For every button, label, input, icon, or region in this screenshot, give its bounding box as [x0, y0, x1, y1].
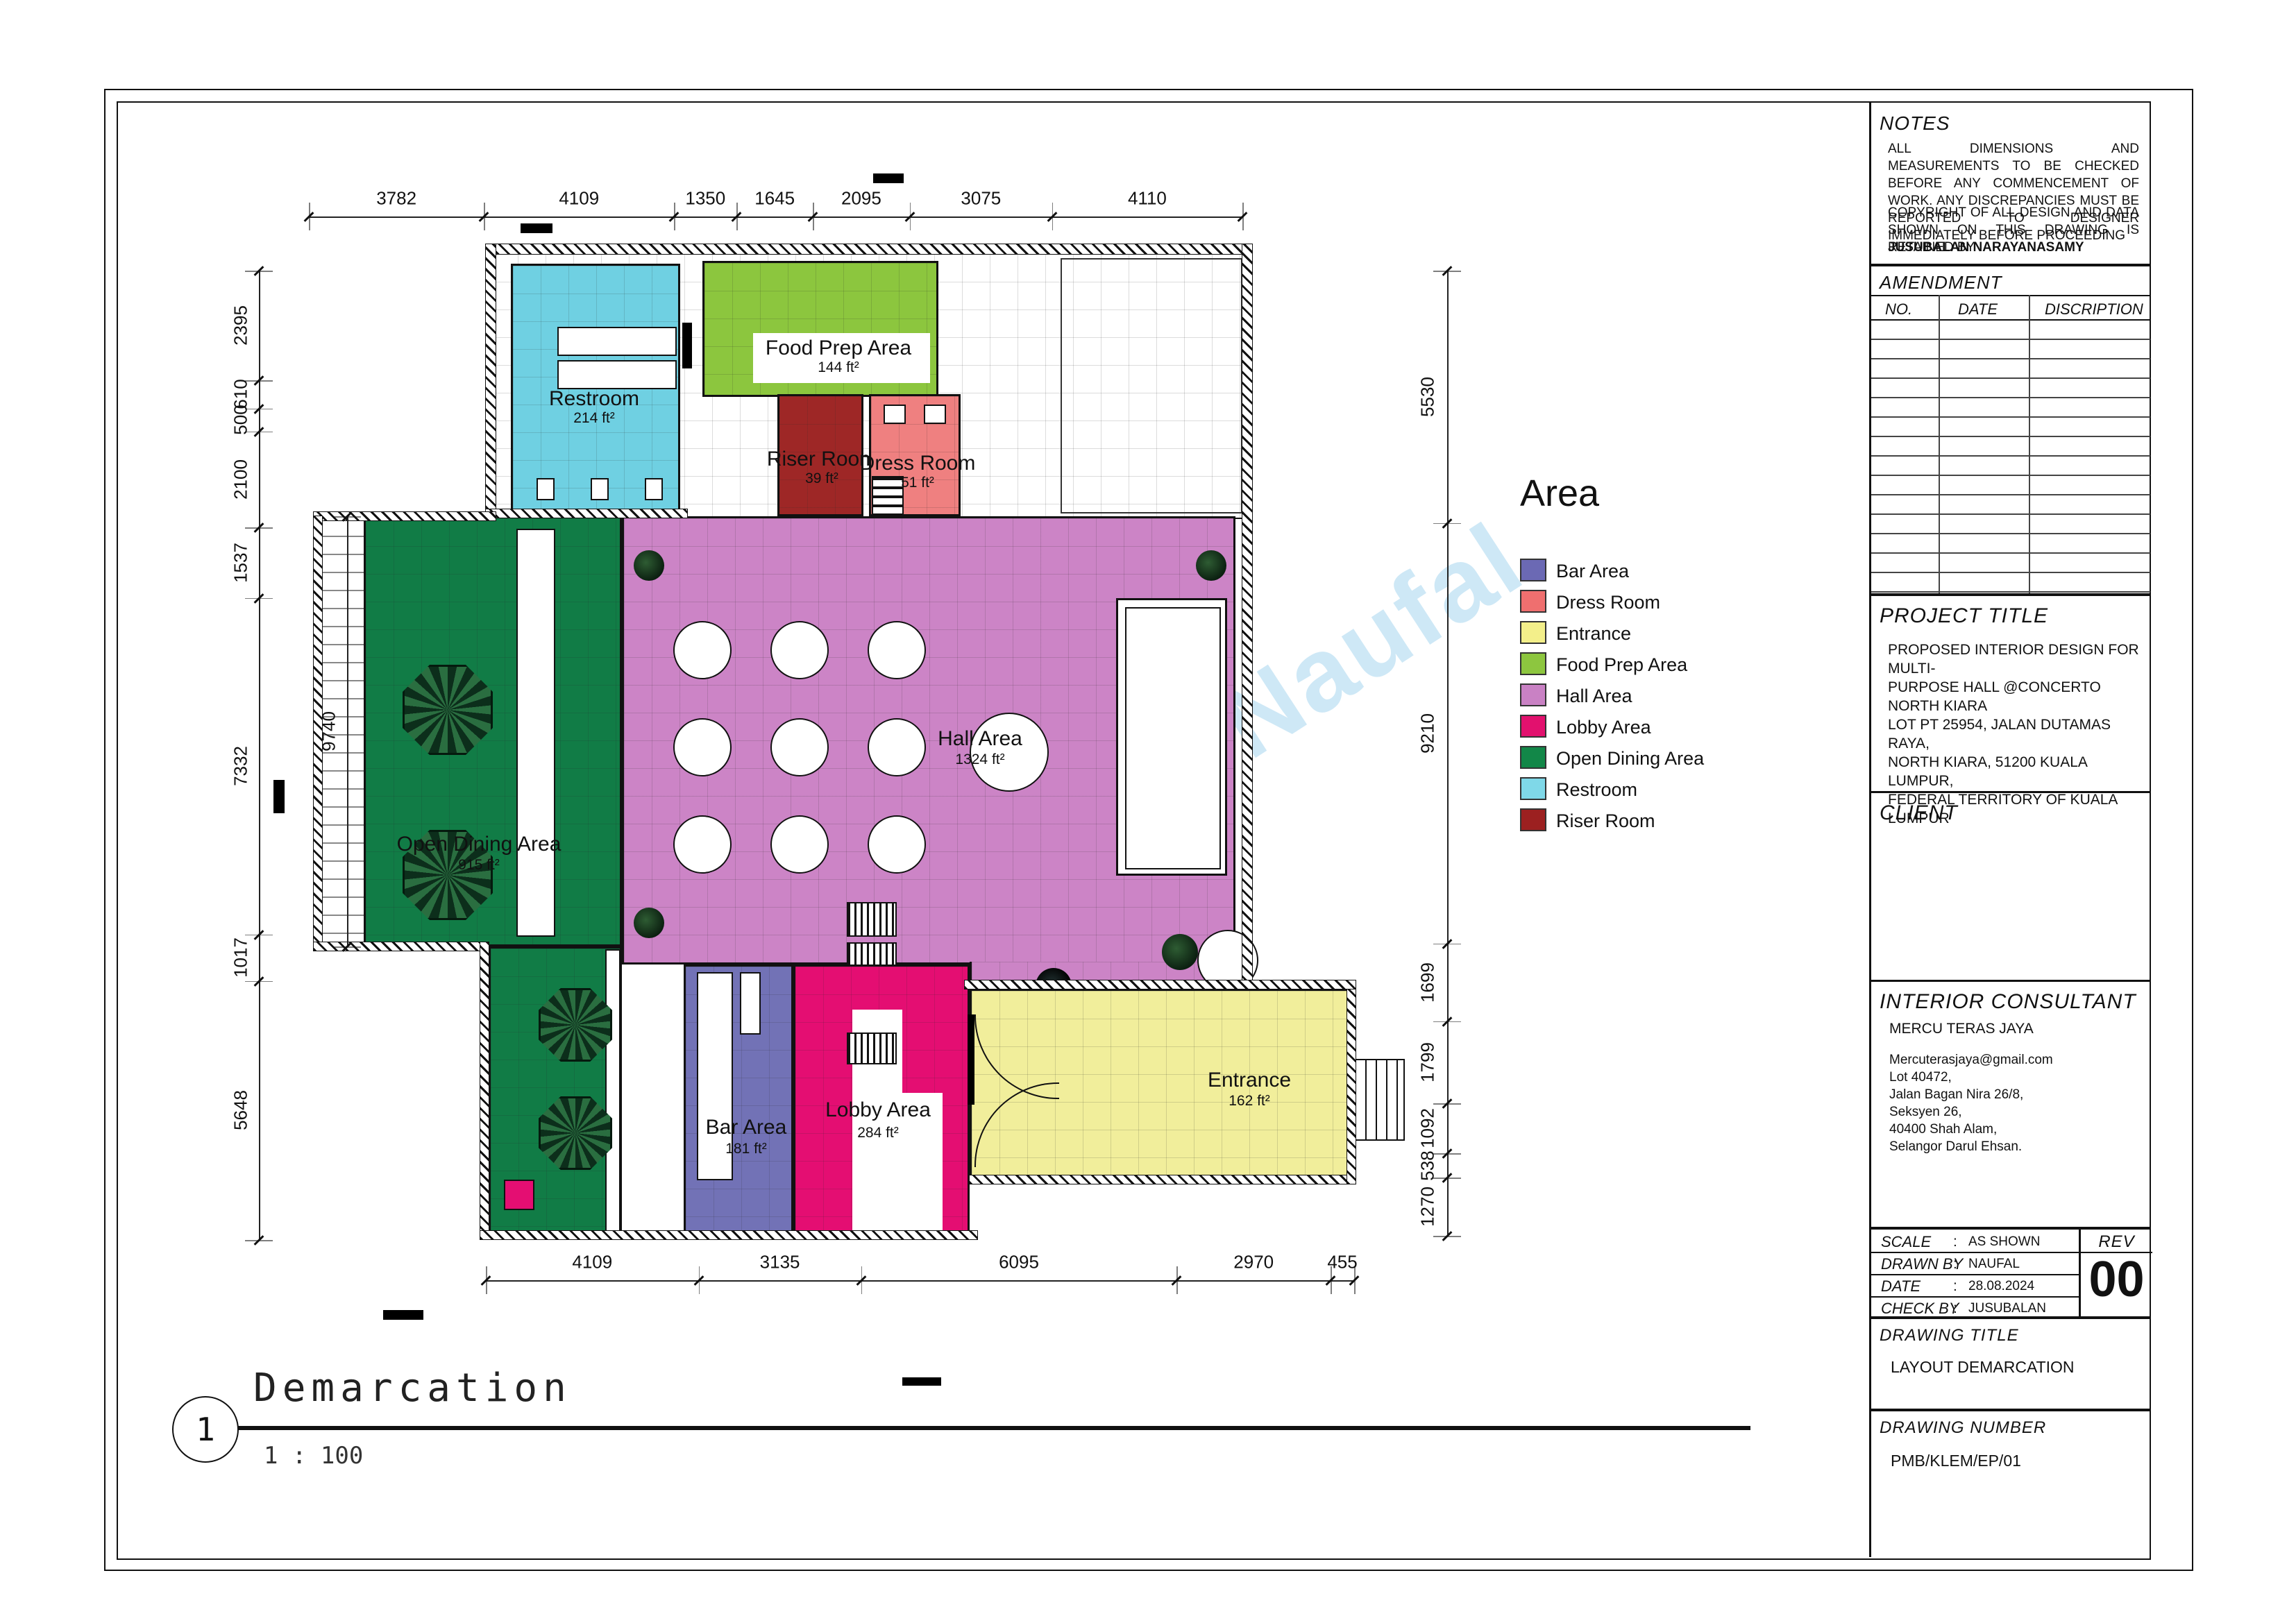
- consultant-address-line: 40400 Shah Alam,: [1889, 1121, 2053, 1138]
- round-table: [673, 621, 732, 679]
- date-value: 28.08.2024: [1968, 1279, 2034, 1294]
- amendment-header-row: NO. DATE DISCRIPTION: [1871, 295, 2150, 321]
- wall: [965, 980, 1356, 989]
- restroom-counter: [557, 360, 677, 389]
- client-section: CLIENT: [1871, 791, 2150, 980]
- consultant-address-line: Selangor Darul Ehsan.: [1889, 1138, 2053, 1155]
- legend-swatch: [1520, 683, 1546, 706]
- drawing-number-value: PMB/KLEM/EP/01: [1891, 1452, 2021, 1470]
- dimension-label: 2395: [230, 305, 252, 346]
- round-table: [770, 621, 829, 679]
- room-area-label: 214 ft²: [573, 410, 615, 427]
- door-marker: [682, 323, 692, 368]
- amendment-col-desc: DISCRIPTION: [2045, 300, 2143, 318]
- room-label: Lobby Area: [825, 1098, 931, 1122]
- round-table: [868, 718, 926, 776]
- drawn-by-value: NAUFAL: [1968, 1257, 2020, 1272]
- legend-swatch: [1520, 715, 1546, 738]
- dimension-label: 500: [230, 405, 252, 434]
- dimension-label: 1699: [1417, 962, 1439, 1003]
- legend-swatch: [1520, 559, 1546, 581]
- consultant-address-line: Mercuterasjaya@gmail.com: [1889, 1051, 2053, 1069]
- legend-label: Dress Room: [1556, 592, 1660, 613]
- tree-planter-icon: [403, 665, 493, 755]
- room-label: Bar Area: [706, 1116, 787, 1139]
- toilet-icon: [645, 478, 663, 500]
- dimension-label: 1270: [1417, 1187, 1439, 1227]
- room-area-label: 915 ft²: [458, 857, 500, 874]
- legend-swatch: [1520, 590, 1546, 613]
- colon: :: [1953, 1300, 1957, 1317]
- bar-counter: [740, 972, 761, 1035]
- dimension-label: 9210: [1417, 713, 1439, 754]
- project-title-line: NORTH KIARA, 51200 KUALA LUMPUR,: [1888, 753, 2150, 790]
- view-scale: 1 : 100: [264, 1442, 363, 1470]
- legend-swatch: [1520, 746, 1546, 769]
- project-title-line: LOT PT 25954, JALAN DUTAMAS RAYA,: [1888, 715, 2150, 753]
- legend-label: Lobby Area: [1556, 717, 1651, 738]
- scale-label: SCALE: [1881, 1233, 1931, 1251]
- door-marker: [968, 1014, 974, 1105]
- toilet-icon: [591, 478, 609, 500]
- drawing-title-heading: DRAWING TITLE: [1880, 1326, 2019, 1345]
- dimension-label: 5648: [230, 1090, 252, 1130]
- room-area-label: 284 ft²: [857, 1125, 899, 1141]
- section-marker: [521, 223, 552, 233]
- room-area-label: 39 ft²: [805, 470, 838, 487]
- room-area-label: 1324 ft²: [955, 751, 1004, 768]
- wall: [1347, 985, 1356, 1184]
- view-title-rule: [237, 1426, 1750, 1430]
- buffet-table: [847, 902, 897, 937]
- dimension-label: 5530: [1417, 377, 1439, 417]
- legend-swatch: [1520, 808, 1546, 831]
- legend-label: Food Prep Area: [1556, 654, 1687, 676]
- drawing-number-heading: DRAWING NUMBER: [1880, 1418, 2046, 1438]
- notes-section: NOTES ALL DIMENSIONS AND MEASUREMENTS TO…: [1871, 101, 2150, 264]
- legend-label: Hall Area: [1556, 686, 1632, 707]
- legend-swatch: [1520, 777, 1546, 800]
- chair-icon: [884, 405, 906, 424]
- dimension-label: 455: [1327, 1252, 1357, 1273]
- planter-icon: [1162, 934, 1198, 970]
- scale-value: AS SHOWN: [1968, 1234, 2040, 1250]
- dimension-label: 9740: [319, 711, 340, 751]
- title-block: NOTES ALL DIMENSIONS AND MEASUREMENTS TO…: [1869, 101, 2150, 1557]
- section-marker: [383, 1310, 423, 1320]
- section-marker: [873, 173, 904, 183]
- toilet-icon: [537, 478, 555, 500]
- upper-right-room: [1061, 258, 1242, 513]
- dimension-label: 4109: [572, 1252, 612, 1273]
- dimension-label: 3075: [961, 188, 1001, 210]
- consultant-address-line: Jalan Bagan Nira 26/8,: [1889, 1086, 2053, 1103]
- consultant-address-line: Lot 40472,: [1889, 1069, 2053, 1086]
- dimension-label: 3135: [760, 1252, 800, 1273]
- room-label: Dress Room: [860, 452, 976, 475]
- check-by-label: CHECK BY: [1881, 1300, 1959, 1318]
- exterior-stair: [1353, 1059, 1405, 1141]
- drawing-sheet: BlueprintByNaufal Restroom 214 ft² Food …: [0, 0, 2296, 1623]
- dimension-label: 1645: [754, 188, 795, 210]
- wall: [486, 509, 687, 518]
- room-label: Food Prep Area: [766, 337, 911, 360]
- amendment-divider: [1939, 295, 1940, 593]
- dimension-label: 4110: [1128, 188, 1167, 210]
- drawing-title-section: DRAWING TITLE LAYOUT DEMARCATION: [1871, 1316, 2150, 1409]
- room-open-dining[interactable]: [364, 516, 622, 946]
- project-title-heading: PROJECT TITLE: [1880, 604, 2048, 628]
- amendment-col-no: NO.: [1885, 300, 1912, 318]
- dimension-label: 1350: [685, 188, 725, 210]
- round-table: [673, 718, 732, 776]
- dining-counter: [605, 949, 621, 1234]
- amendment-divider: [2029, 295, 2030, 593]
- plant-icon: [634, 550, 664, 581]
- dimension-label: 6095: [999, 1252, 1039, 1273]
- round-table: [770, 815, 829, 874]
- wall: [970, 1175, 1356, 1184]
- consultant-heading: INTERIOR CONSULTANT: [1880, 990, 2136, 1014]
- copyright-name: JUSUBALAN NARAYANASAMY: [1888, 239, 2139, 256]
- room-label: Entrance: [1208, 1069, 1291, 1092]
- wall: [1242, 244, 1252, 989]
- room-area-label: 181 ft²: [725, 1141, 767, 1157]
- room-label: Open Dining Area: [397, 833, 562, 856]
- client-heading: CLIENT: [1880, 801, 1958, 825]
- tree-planter-icon: [539, 1096, 612, 1170]
- legend-title: Area: [1520, 472, 1599, 515]
- dimension-label: 2970: [1233, 1252, 1274, 1273]
- dimension-label: 3782: [376, 188, 416, 210]
- dimension-label: 7332: [230, 746, 252, 786]
- legend-label: Bar Area: [1556, 561, 1629, 582]
- rev-cell: REV 00: [2079, 1230, 2152, 1319]
- amendment-rows: [1871, 321, 2150, 593]
- wall: [486, 244, 496, 519]
- check-by-value: JUSUBALAN: [1968, 1301, 2046, 1316]
- dimension-label: 1092: [1417, 1108, 1439, 1148]
- consultant-section: INTERIOR CONSULTANT MERCU TERAS JAYA Mer…: [1871, 980, 2150, 1227]
- consultant-name: MERCU TERAS JAYA: [1889, 1021, 2034, 1037]
- view-number: 1: [196, 1411, 215, 1448]
- room-area-label: 162 ft²: [1229, 1093, 1270, 1110]
- round-table: [673, 815, 732, 874]
- amendment-section: AMENDMENT: [1871, 264, 2150, 295]
- buffet-table: [847, 1033, 897, 1064]
- colon: :: [1953, 1234, 1957, 1250]
- plant-icon: [634, 908, 664, 938]
- dimension-label: 2100: [230, 459, 252, 500]
- room-area-label: 51 ft²: [901, 475, 934, 491]
- stage: [1116, 598, 1227, 876]
- room-label: Restroom: [549, 387, 639, 411]
- round-table: [770, 718, 829, 776]
- legend-label: Entrance: [1556, 623, 1631, 645]
- room-area-label: 144 ft²: [818, 359, 859, 376]
- wall: [480, 942, 489, 1239]
- wall: [486, 244, 1252, 254]
- service-box: [504, 1180, 534, 1210]
- project-title-line: PURPOSE HALL @CONCERTO NORTH KIARA: [1888, 678, 2150, 715]
- drawn-by-label: DRAWN BY: [1881, 1255, 1963, 1273]
- wall: [480, 1231, 977, 1239]
- dimension-label: 1537: [230, 543, 252, 583]
- round-table: [868, 815, 926, 874]
- stage-inner: [1125, 607, 1221, 869]
- chair-icon: [924, 405, 946, 424]
- amendment-heading: AMENDMENT: [1880, 272, 2002, 294]
- consultant-address-line: Seksyen 26,: [1889, 1103, 2053, 1121]
- notes-heading: NOTES: [1880, 112, 1950, 135]
- room-label: Hall Area: [938, 727, 1022, 751]
- project-title-line: PROPOSED INTERIOR DESIGN FOR MULTI-: [1888, 640, 2150, 678]
- dimension-label: 4109: [559, 188, 599, 210]
- drawing-title-value: LAYOUT DEMARCATION: [1891, 1358, 2075, 1377]
- dimension-label: 1799: [1417, 1042, 1439, 1082]
- tree-planter-icon: [539, 988, 612, 1062]
- restroom-counter: [557, 327, 677, 356]
- round-table: [868, 621, 926, 679]
- legend-swatch: [1520, 621, 1546, 644]
- drawing-number-section: DRAWING NUMBER PMB/KLEM/EP/01: [1871, 1409, 2150, 1557]
- legend-label: Riser Room: [1556, 810, 1655, 832]
- view-title: Demarcation: [253, 1366, 572, 1411]
- legend-label: Open Dining Area: [1556, 748, 1704, 770]
- dimension-label: 1017: [230, 937, 252, 978]
- legend-swatch: [1520, 652, 1546, 675]
- amendment-col-date: DATE: [1958, 300, 1998, 318]
- project-title-section: PROJECT TITLE PROPOSED INTERIOR DESIGN F…: [1871, 593, 2150, 791]
- legend-label: Restroom: [1556, 779, 1637, 801]
- colon: :: [1953, 1256, 1957, 1273]
- section-marker: [902, 1377, 941, 1386]
- rev-value: 00: [2088, 1251, 2144, 1308]
- meta-section: SCALE : AS SHOWN DRAWN BY : NAUFAL DATE …: [1871, 1227, 2150, 1316]
- rev-label: REV: [2098, 1232, 2134, 1252]
- room-bar[interactable]: [684, 965, 793, 1235]
- view-number-bubble: 1: [172, 1396, 239, 1463]
- plant-icon: [1196, 550, 1226, 581]
- dimension-label: 538: [1417, 1150, 1439, 1180]
- dining-counter: [516, 529, 555, 937]
- section-marker: [273, 780, 285, 813]
- colon: :: [1953, 1278, 1957, 1295]
- dimension-label: 2095: [841, 188, 881, 210]
- date-label: DATE: [1881, 1277, 1921, 1295]
